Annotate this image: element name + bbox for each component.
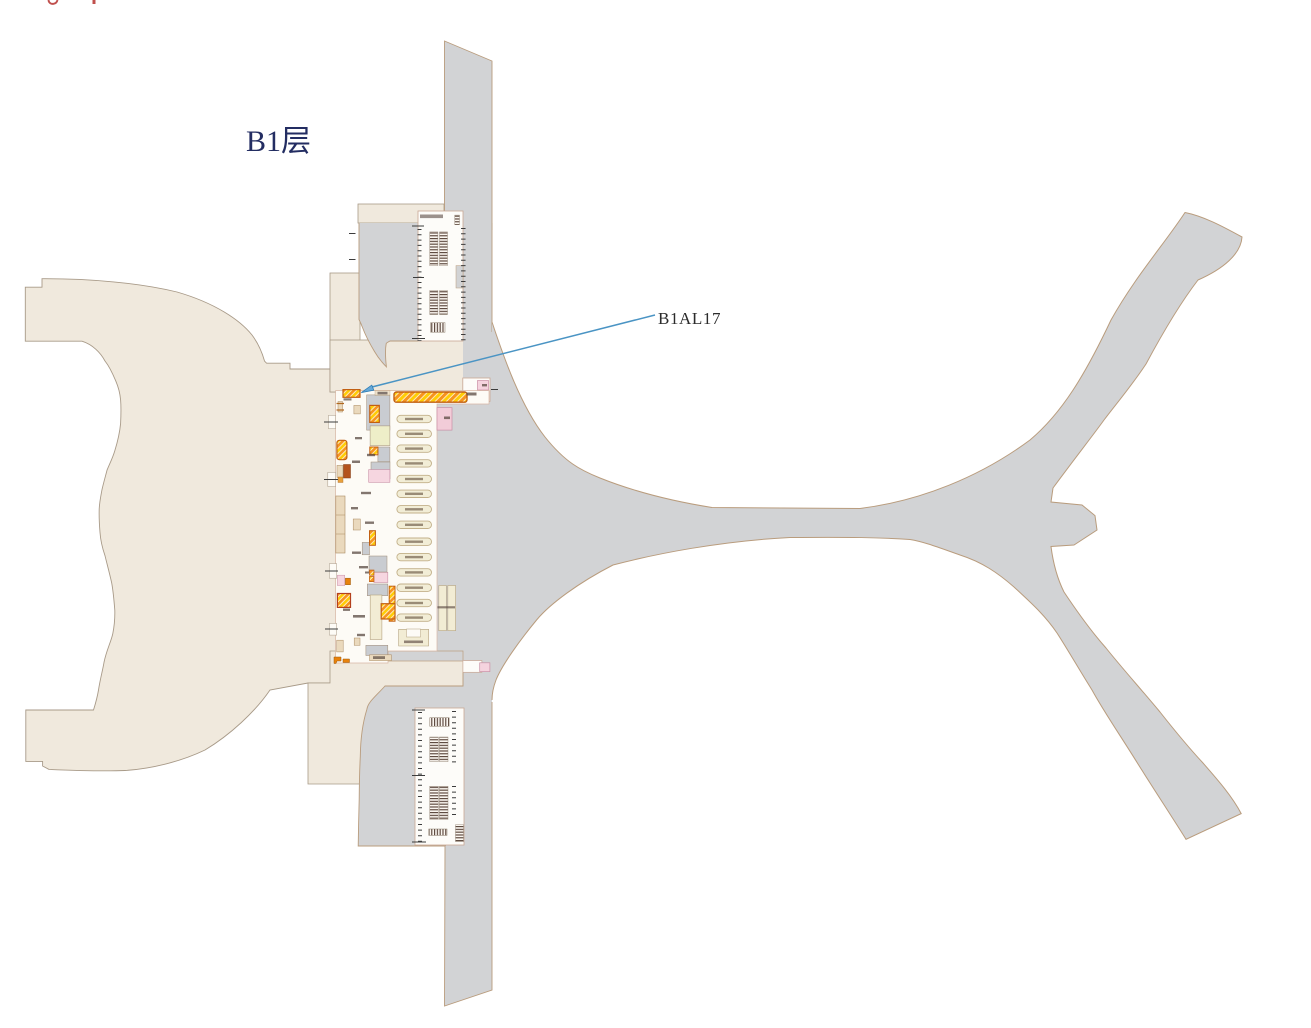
svg-text:B1AL17: B1AL17: [658, 309, 721, 328]
svg-text:B1层: B1层: [246, 125, 311, 158]
